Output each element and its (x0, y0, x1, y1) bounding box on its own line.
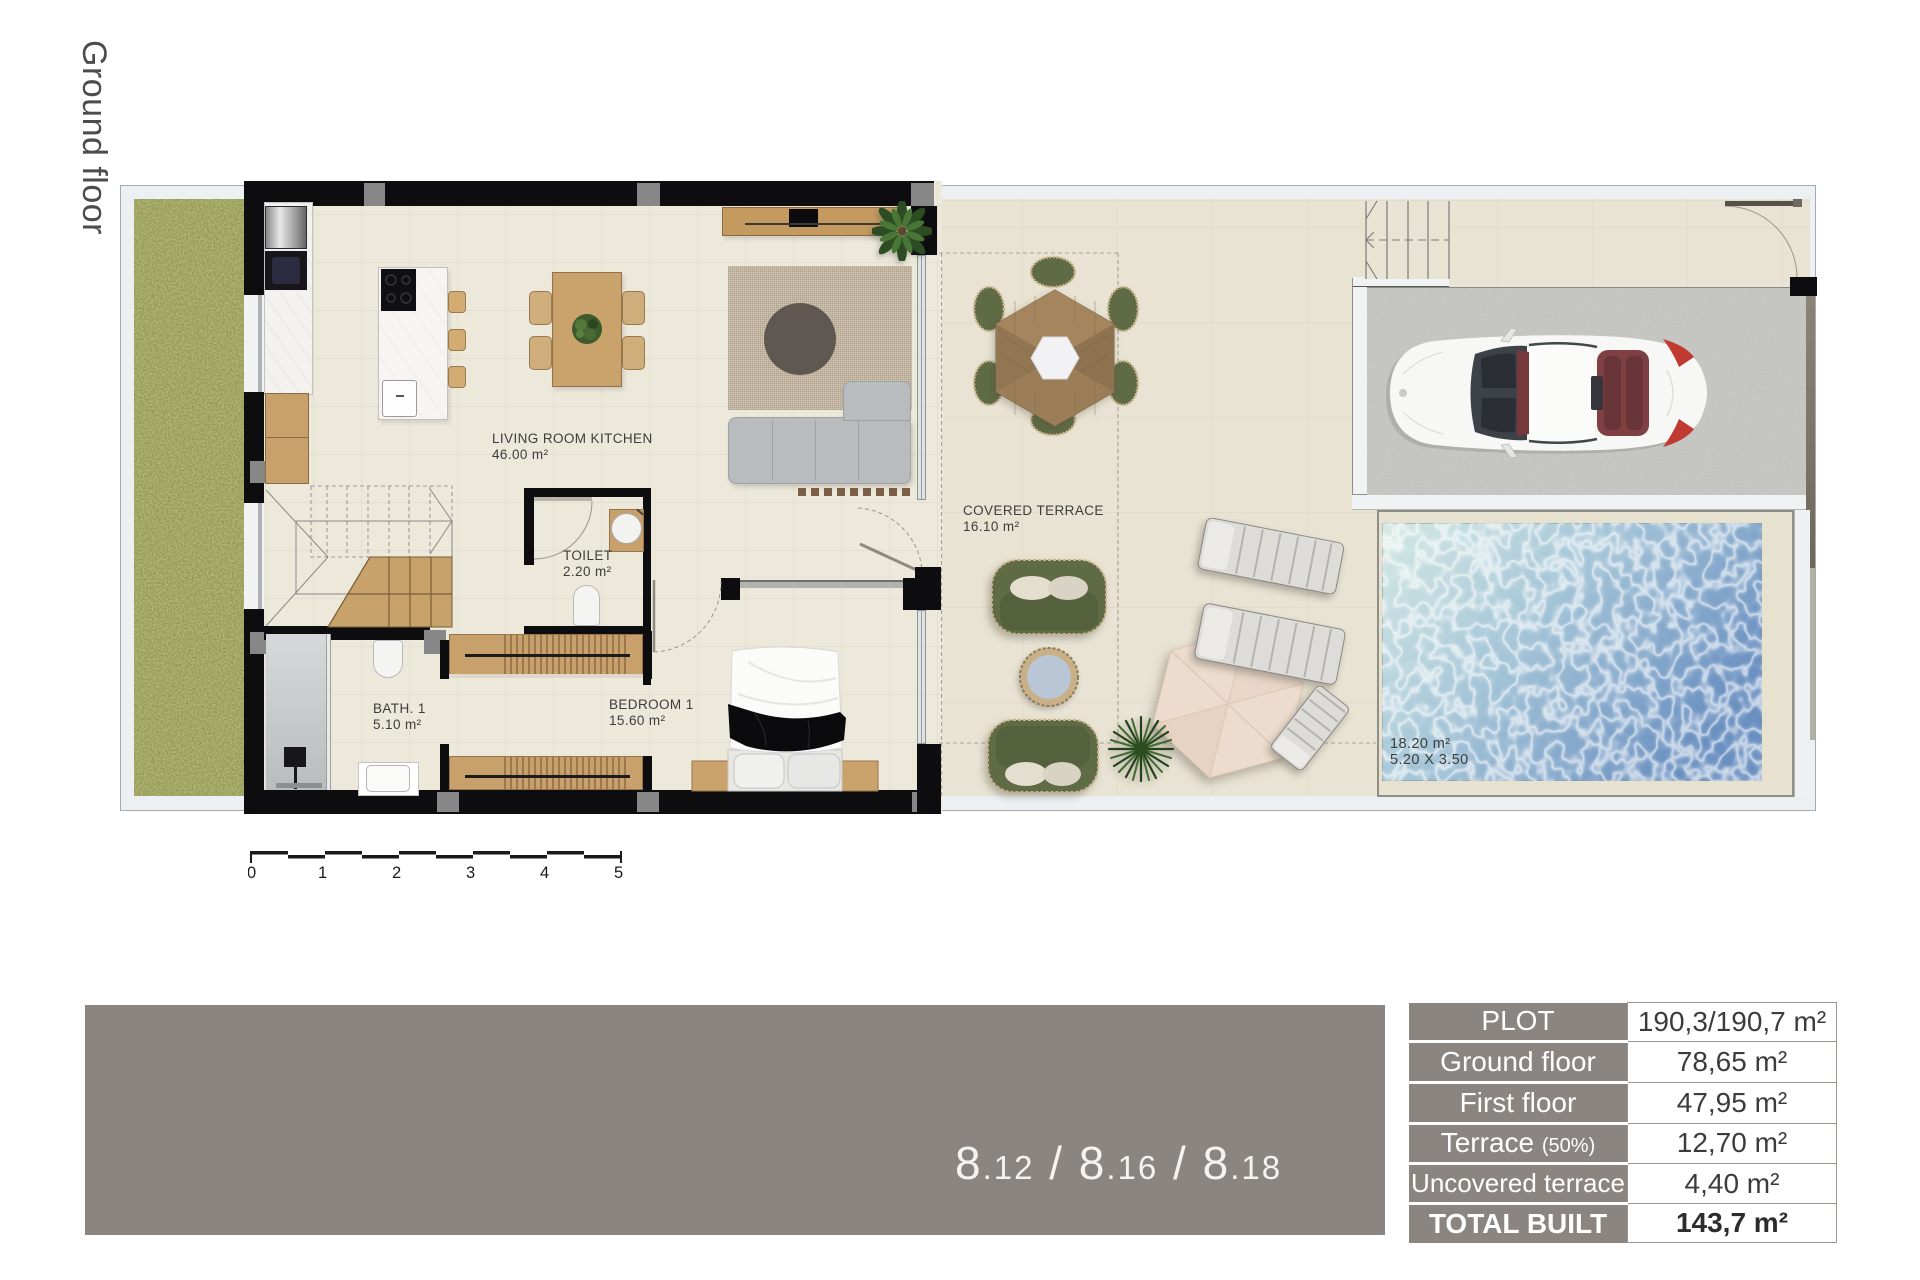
svg-text:3: 3 (466, 864, 475, 882)
svg-text:5: 5 (614, 864, 623, 882)
svg-text:4: 4 (540, 864, 549, 882)
svg-text:1: 1 (318, 864, 327, 882)
svg-text:0: 0 (248, 864, 256, 882)
svg-text:2: 2 (392, 864, 401, 882)
